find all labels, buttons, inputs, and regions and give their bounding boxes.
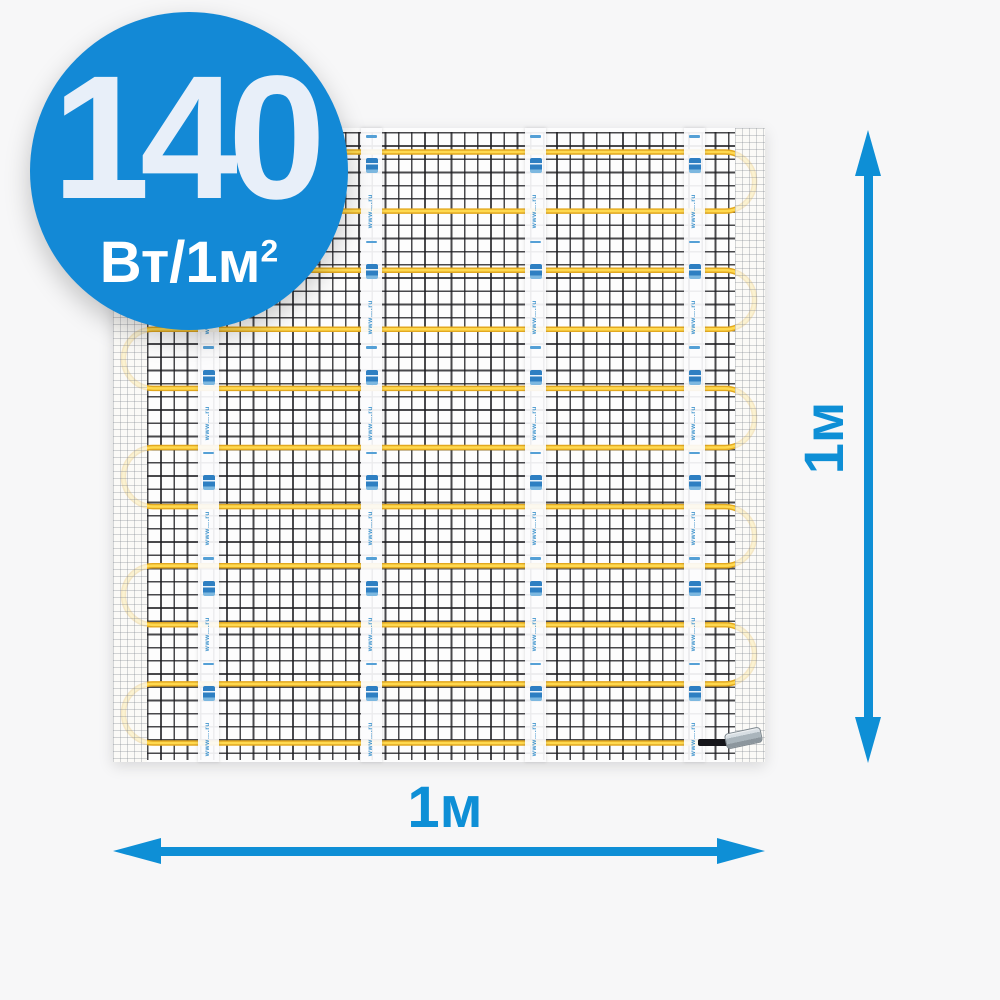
brand-stamp-icon xyxy=(366,475,378,490)
tape-brand-text: www….ru xyxy=(205,406,212,440)
height-label: 1м xyxy=(772,386,876,490)
tape-dash xyxy=(689,241,700,244)
brand-stamp-icon xyxy=(689,158,701,173)
brand-stamp-icon xyxy=(366,686,378,701)
tape-dash xyxy=(530,452,541,455)
tape-dash xyxy=(689,663,700,666)
tape-brand-text: www….ru xyxy=(368,511,375,545)
brand-stamp-icon xyxy=(366,158,378,173)
tape-brand-text: www….ru xyxy=(691,194,698,228)
tape-dash xyxy=(203,663,214,666)
tape-dash xyxy=(366,663,377,666)
arrow-right-icon xyxy=(717,838,765,864)
brand-stamp-icon xyxy=(530,264,542,279)
product-image: www….ruwww….ruwww….ruwww….ruwww….ruwww….… xyxy=(0,0,1000,1000)
power-value: 140 xyxy=(62,68,316,209)
tape-brand-text: www….ru xyxy=(691,406,698,440)
power-unit-exponent: 2 xyxy=(261,233,279,269)
mat-tape-strip: www….ruwww….ruwww….ruwww….ruwww….ruwww….… xyxy=(361,128,382,762)
brand-stamp-icon xyxy=(203,475,215,490)
tape-brand-text: www….ru xyxy=(368,617,375,651)
tape-brand-text: www….ru xyxy=(368,194,375,228)
tape-dash xyxy=(366,452,377,455)
mat-tape-strip: www….ruwww….ruwww….ruwww….ruwww….ruwww….… xyxy=(525,128,546,762)
brand-stamp-icon xyxy=(366,581,378,596)
tape-brand-text: www….ru xyxy=(532,617,539,651)
power-badge: 140 Вт/1м2 xyxy=(30,12,348,330)
brand-stamp-icon xyxy=(530,370,542,385)
brand-stamp-icon xyxy=(203,686,215,701)
tape-brand-text: www….ru xyxy=(691,300,698,334)
brand-stamp-icon xyxy=(689,686,701,701)
tape-dash xyxy=(203,346,214,349)
mat-tape-strip: www….ruwww….ruwww….ruwww….ruwww….ruwww….… xyxy=(684,128,705,762)
brand-stamp-icon xyxy=(530,475,542,490)
brand-stamp-icon xyxy=(530,581,542,596)
tape-brand-text: www….ru xyxy=(532,722,539,756)
tape-dash xyxy=(530,346,541,349)
power-unit: Вт/1м2 xyxy=(100,234,279,292)
tape-dash xyxy=(530,557,541,560)
tape-dash xyxy=(689,346,700,349)
tape-dash xyxy=(530,135,541,138)
tape-dash xyxy=(366,557,377,560)
arrow-down-icon xyxy=(855,717,881,763)
mat-edge-right xyxy=(735,128,765,762)
brand-stamp-icon xyxy=(366,370,378,385)
tape-dash xyxy=(530,663,541,666)
tape-dash xyxy=(689,135,700,138)
tape-dash xyxy=(366,135,377,138)
tape-brand-text: www….ru xyxy=(532,194,539,228)
tape-brand-text: www….ru xyxy=(205,617,212,651)
brand-stamp-icon xyxy=(203,370,215,385)
arrow-left-icon xyxy=(113,838,161,864)
brand-stamp-icon xyxy=(203,581,215,596)
tape-dash xyxy=(366,241,377,244)
tape-brand-text: www….ru xyxy=(532,300,539,334)
tape-brand-text: www….ru xyxy=(368,722,375,756)
brand-stamp-icon xyxy=(530,158,542,173)
brand-stamp-icon xyxy=(689,264,701,279)
tape-brand-text: www….ru xyxy=(691,722,698,756)
brand-stamp-icon xyxy=(366,264,378,279)
width-dimension-line xyxy=(150,847,722,856)
tape-dash xyxy=(203,452,214,455)
brand-stamp-icon xyxy=(689,475,701,490)
tape-brand-text: www….ru xyxy=(532,406,539,440)
tape-brand-text: www….ru xyxy=(205,722,212,756)
tape-brand-text: www….ru xyxy=(368,406,375,440)
width-label: 1м xyxy=(385,779,505,837)
brand-stamp-icon xyxy=(530,686,542,701)
tape-dash xyxy=(203,557,214,560)
tape-brand-text: www….ru xyxy=(691,511,698,545)
tape-dash xyxy=(689,452,700,455)
tape-brand-text: www….ru xyxy=(368,300,375,334)
arrow-up-icon xyxy=(855,130,881,176)
tape-brand-text: www….ru xyxy=(691,617,698,651)
tape-dash xyxy=(689,557,700,560)
brand-stamp-icon xyxy=(689,370,701,385)
power-unit-text: Вт/1м xyxy=(100,230,261,295)
tape-dash xyxy=(366,346,377,349)
tape-dash xyxy=(530,241,541,244)
tape-brand-text: www….ru xyxy=(532,511,539,545)
brand-stamp-icon xyxy=(689,581,701,596)
tape-brand-text: www….ru xyxy=(205,511,212,545)
